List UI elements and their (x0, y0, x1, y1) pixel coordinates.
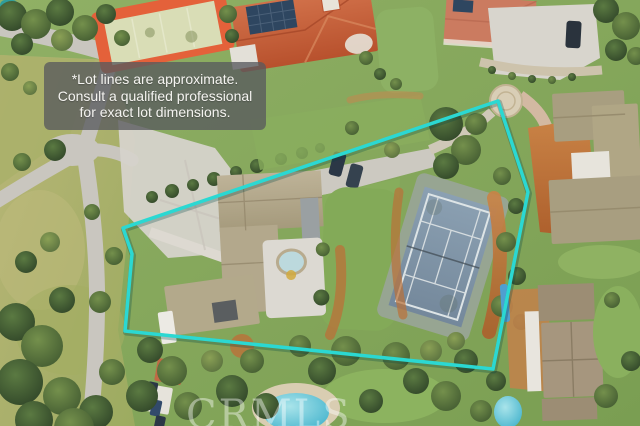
aerial-lot-photo: CRMLS *Lot lines are approximate. Consul… (0, 0, 640, 426)
suv (565, 21, 581, 49)
solar-panels (453, 0, 474, 13)
skylight (321, 0, 340, 12)
disclaimer-line-1: *Lot lines are approximate. (52, 71, 258, 88)
disclaimer-box: *Lot lines are approximate. Consult a qu… (44, 62, 266, 130)
disclaimer-line-3: for exact lot dimensions. (52, 104, 258, 121)
disclaimer-line-2: Consult a qualified professional (52, 88, 258, 105)
